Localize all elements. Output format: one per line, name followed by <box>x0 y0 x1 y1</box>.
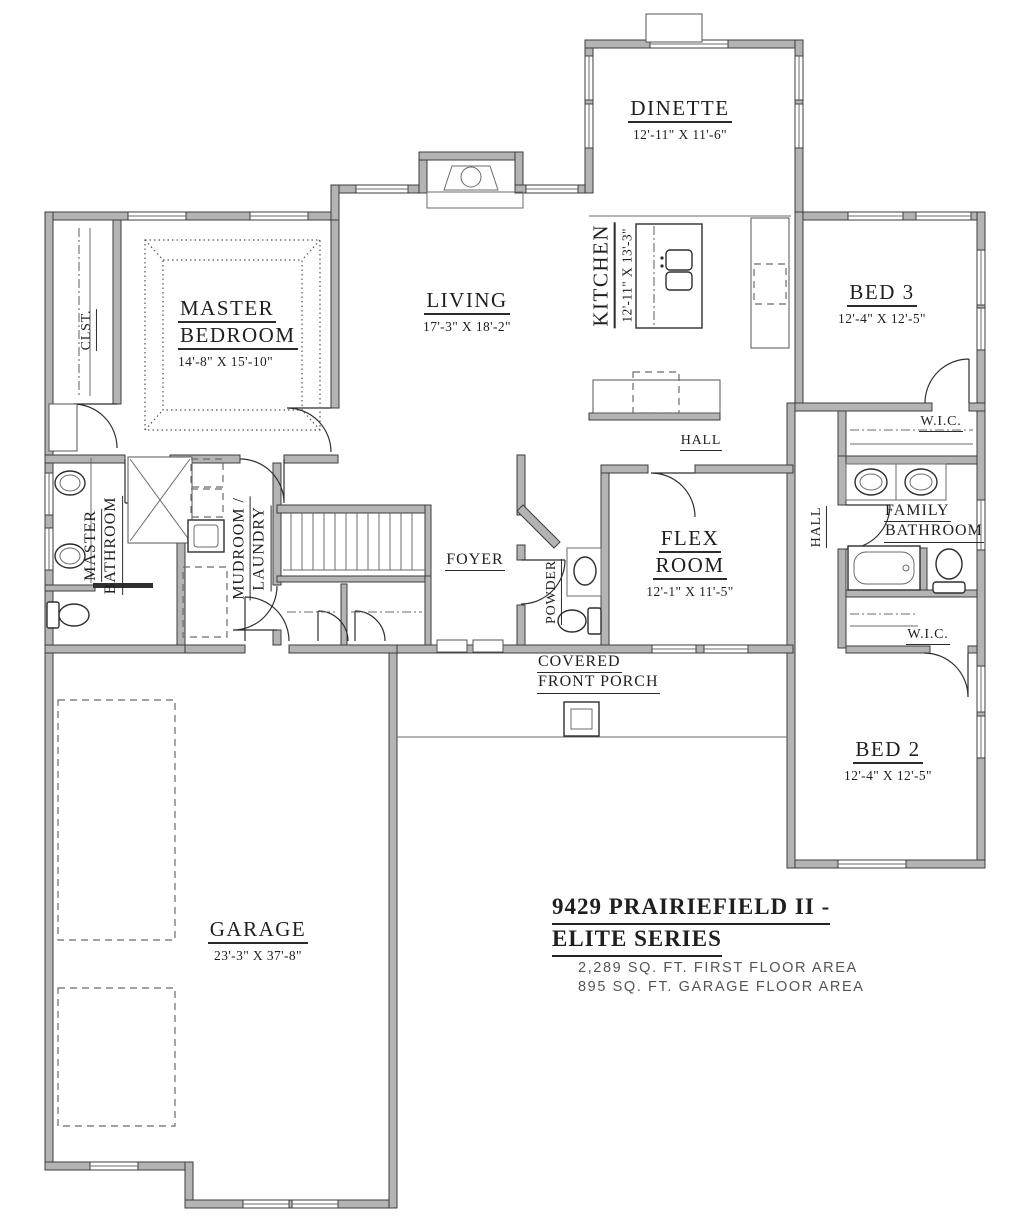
clst-name: CLST. <box>79 309 97 352</box>
room-label-wic-top: W.I.C. <box>901 414 981 432</box>
garage-markings <box>58 700 175 1126</box>
garage-dims: 23'-3" X 37'-8" <box>214 948 302 964</box>
plan-title-line1: 9429 PRAIRIEFIELD II - <box>552 893 830 925</box>
garage-name: GARAGE <box>208 917 309 944</box>
mudroom-laundry-line1: MUDROOM / <box>231 496 251 601</box>
foyer-name: FOYER <box>445 551 504 571</box>
porch-line1: COVERED <box>537 653 622 673</box>
kitchen-dims: 12'-11" X 13'-3" <box>620 228 636 323</box>
room-label-mudroom-laundry: MUDROOM / LAUNDRY <box>231 483 272 613</box>
master-bathroom-line2: BATHROOM <box>103 496 123 596</box>
living-name: LIVING <box>424 288 509 315</box>
family-bathroom-line2: BATHROOM <box>884 522 984 542</box>
hall-right-name: HALL <box>809 506 827 549</box>
family-sink-1 <box>855 469 887 495</box>
garage-floor-area: 895 SQ. FT. GARAGE FLOOR AREA <box>578 979 865 995</box>
flex-room-dims: 12'-1" X 11'-5" <box>646 584 733 600</box>
room-label-hall-right: HALL <box>809 497 827 557</box>
room-label-powder: POWDER <box>544 547 562 637</box>
dinette-name: DINETTE <box>628 96 731 123</box>
wic-top-name: W.I.C. <box>919 414 962 432</box>
room-label-bed3: BED 3 12'-4" X 12'-5" <box>792 280 972 327</box>
flex-room-line2: ROOM <box>653 553 726 580</box>
flex-room-line1: FLEX <box>659 526 722 553</box>
porch-line2: FRONT PORCH <box>537 673 660 693</box>
family-sink-2 <box>905 469 937 495</box>
plan-title-line2: ELITE SERIES <box>552 925 722 957</box>
master-bedroom-line2: BEDROOM <box>178 323 298 350</box>
mudroom-laundry-line2: LAUNDRY <box>251 505 271 591</box>
stairs <box>283 513 425 612</box>
bed2-name: BED 2 <box>853 737 922 764</box>
powder-toilet <box>558 608 601 634</box>
family-bathroom-line1: FAMILY <box>884 502 951 522</box>
first-floor-area: 2,289 SQ. FT. FIRST FLOOR AREA <box>578 960 858 976</box>
laundry-sink <box>188 520 224 552</box>
porch-column <box>564 702 599 736</box>
master-bedroom-dims: 14'-8" X 15'-10" <box>178 354 273 370</box>
room-label-family-bathroom: FAMILY BATHROOM <box>884 502 994 543</box>
living-dims: 17'-3" X 18'-2" <box>423 319 511 335</box>
bathtub <box>848 546 920 590</box>
room-label-kitchen: KITCHEN 12'-11" X 13'-3" <box>589 200 636 350</box>
room-label-flex-room: FLEX ROOM 12'-1" X 11'-5" <box>610 526 770 600</box>
master-sink-1 <box>55 471 85 495</box>
room-label-garage: GARAGE 23'-3" X 37'-8" <box>168 917 348 964</box>
room-label-wic-bottom: W.I.C. <box>888 627 968 645</box>
room-label-porch: COVERED FRONT PORCH <box>537 653 667 694</box>
room-label-living: LIVING 17'-3" X 18'-2" <box>377 288 557 335</box>
title-block: 9429 PRAIRIEFIELD II - ELITE SERIES 2,28… <box>552 893 882 995</box>
room-label-hall-top: HALL <box>666 433 736 451</box>
room-label-master-bedroom: MASTER BEDROOM 14'-8" X 15'-10" <box>178 296 338 370</box>
bed2-dims: 12'-4" X 12'-5" <box>844 768 932 784</box>
bed3-name: BED 3 <box>847 280 916 307</box>
room-label-master-bathroom: MASTER BATHROOM <box>82 483 123 608</box>
master-bathroom-line1: MASTER <box>82 509 102 582</box>
dinette-dims: 12'-11" X 11'-6" <box>633 127 727 143</box>
room-label-clst: CLST. <box>79 295 97 365</box>
master-sink-2 <box>55 544 85 568</box>
bed3-dims: 12'-4" X 12'-5" <box>838 311 926 327</box>
floorplan-drawing <box>0 0 1032 1229</box>
floor-plan-page: DINETTE 12'-11" X 11'-6" KITCHEN 12'-11"… <box>0 0 1032 1229</box>
master-bedroom-line1: MASTER <box>178 296 276 323</box>
wic-bottom-name: W.I.C. <box>906 627 949 645</box>
room-label-dinette: DINETTE 12'-11" X 11'-6" <box>590 96 770 143</box>
room-label-bed2: BED 2 12'-4" X 12'-5" <box>798 737 978 784</box>
family-toilet <box>933 549 965 593</box>
kitchen-name: KITCHEN <box>589 222 616 329</box>
hall-top-name: HALL <box>680 433 723 451</box>
room-label-foyer: FOYER <box>430 551 520 571</box>
shower <box>128 457 192 543</box>
powder-name: POWDER <box>544 559 562 625</box>
